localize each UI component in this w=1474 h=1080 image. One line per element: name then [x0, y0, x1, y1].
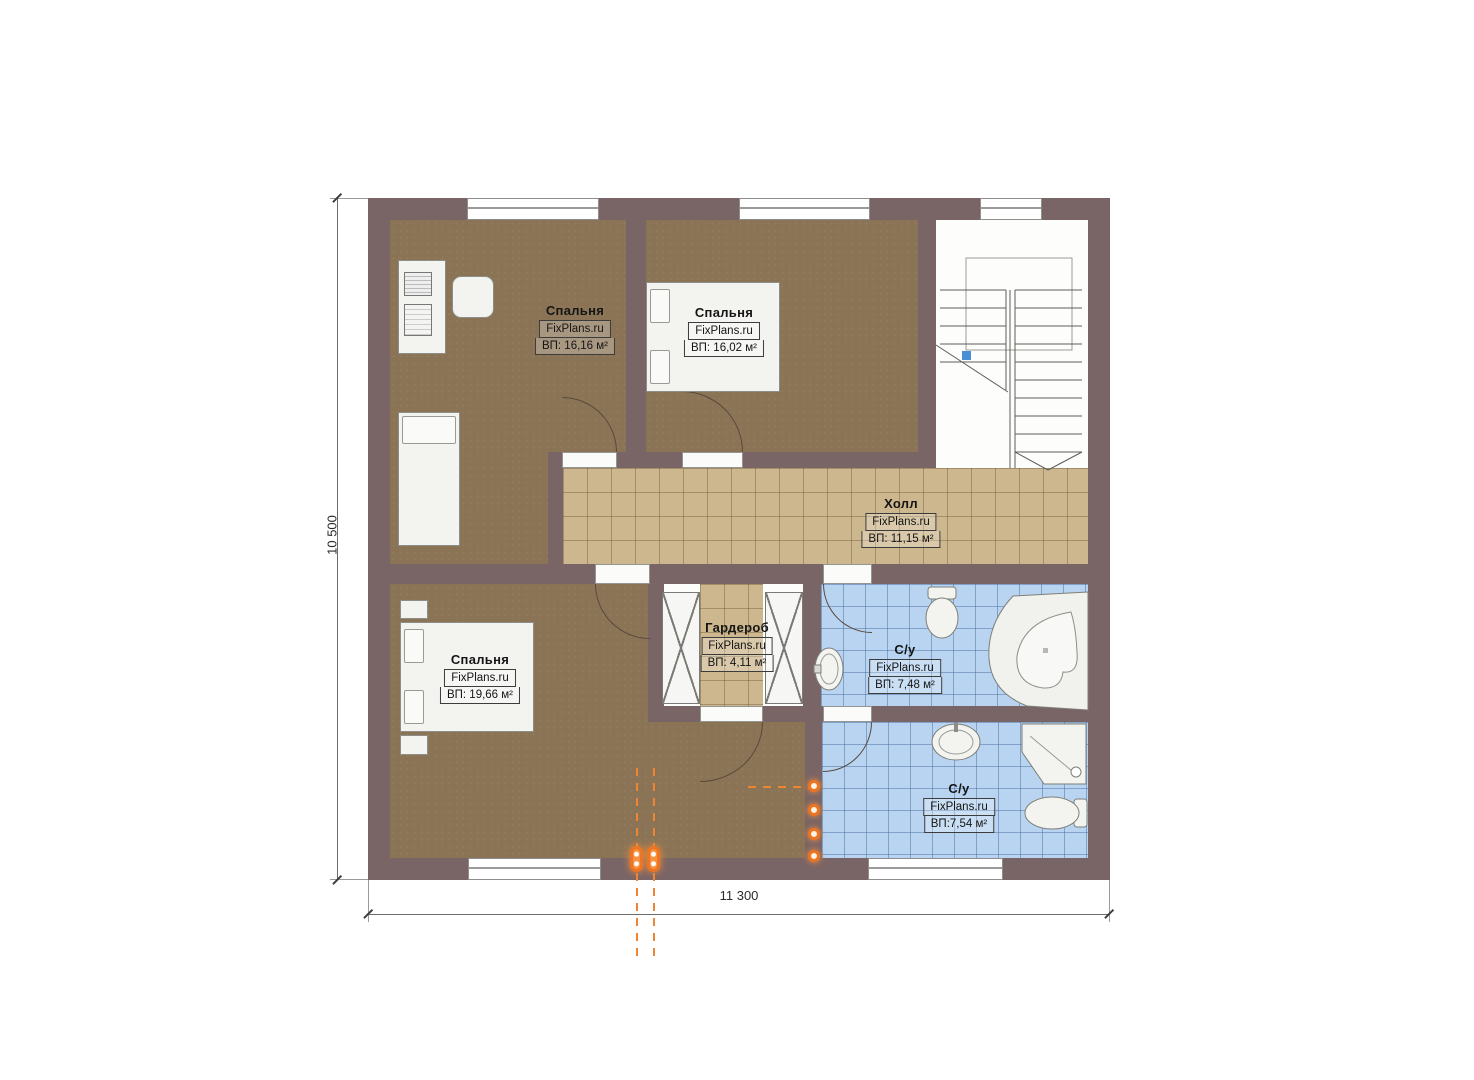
room-label-bedroom-top-left: Спальня FixPlans.ru ВП: 16,16 м² [535, 303, 615, 355]
room-label-bathroom-bottom: С/у FixPlans.ru ВП:7,54 м² [923, 781, 995, 833]
stair-marker-blue [962, 351, 971, 360]
bed-double-top-pillow-2 [650, 350, 670, 384]
wall-bedrooms-divider-top [626, 220, 646, 468]
room-label-bathroom-top: С/у FixPlans.ru ВП: 7,48 м² [868, 642, 942, 694]
dim-label-height: 10 500 [325, 515, 340, 555]
room-area: ВП: 11,15 м² [861, 531, 940, 548]
window-bottom-1 [468, 858, 601, 880]
wall-bath-split-seg1 [648, 706, 700, 722]
radiator-dot-2 [808, 804, 820, 816]
wall-hall-south-seg2 [650, 564, 823, 584]
nightstand-bottom [400, 735, 428, 755]
wall-hall-north-seg1 [617, 452, 682, 468]
bed-single-pillow [402, 416, 456, 444]
room-brand: FixPlans.ru [688, 322, 760, 340]
window-top-3 [980, 198, 1042, 220]
room-label-bedroom-top-middle: Спальня FixPlans.ru ВП: 16,02 м² [684, 305, 764, 357]
dim-line-horizontal [368, 914, 1110, 915]
dim-label-width: 11 300 [720, 888, 759, 903]
floor-hall-tiles [563, 468, 1088, 564]
door-leaf-bedroom-bottom [595, 564, 650, 584]
bed-double-bottom-pillow-2 [404, 690, 424, 724]
wall-hall-south-seg1 [390, 564, 595, 584]
desk-printer-icon [404, 272, 432, 296]
room-name: Спальня [546, 303, 604, 318]
riser-marker-2 [647, 846, 660, 872]
door-leaf-bedroom-top-middle [682, 452, 743, 468]
sink-top-bathroom [814, 646, 848, 692]
room-area: ВП: 4,11 м² [701, 655, 774, 672]
room-name: Спальня [451, 652, 509, 667]
room-name: Холл [884, 496, 918, 511]
room-brand: FixPlans.ru [923, 798, 995, 816]
room-label-hall: Холл FixPlans.ru ВП: 11,15 м² [861, 496, 940, 548]
room-brand: FixPlans.ru [444, 669, 516, 687]
room-area: ВП: 16,16 м² [535, 338, 615, 355]
dim-extension-bottom-1 [368, 880, 369, 922]
room-brand: FixPlans.ru [869, 659, 941, 677]
bed-double-bottom-pillow-1 [404, 629, 424, 663]
radiator-dashed-line [748, 786, 810, 788]
sink-bottom-bathroom [930, 722, 982, 766]
desk-monitor-icon [404, 304, 432, 336]
wall-exterior-left [368, 198, 390, 880]
room-brand: FixPlans.ru [539, 320, 611, 338]
room-name: Гардероб [705, 620, 769, 635]
room-brand: FixPlans.ru [865, 513, 937, 531]
desk-chair [452, 276, 494, 318]
wall-hall-north-seg2 [743, 452, 918, 468]
window-top-1 [467, 198, 599, 220]
window-bottom-2 [868, 858, 1003, 880]
dim-extension-bottom-2 [1109, 880, 1110, 922]
room-area: ВП: 19,66 м² [440, 687, 520, 704]
window-top-2 [739, 198, 870, 220]
riser-marker-1 [630, 846, 643, 872]
radiator-dot-4 [808, 850, 820, 862]
room-brand: FixPlans.ru [701, 637, 773, 655]
wall-bath-split-seg2 [763, 706, 823, 722]
toilet-top-bathroom [920, 586, 964, 640]
toilet-bottom-bathroom [1022, 794, 1088, 832]
bed-double-top-pillow-1 [650, 289, 670, 323]
room-name: Спальня [695, 305, 753, 320]
radiator-dot-3 [808, 828, 820, 840]
wall-exterior-right [1088, 198, 1110, 880]
room-name: С/у [894, 642, 915, 657]
room-label-wardrobe: Гардероб FixPlans.ru ВП: 4,11 м² [701, 620, 774, 672]
staircase [936, 220, 1088, 470]
corner-shower [1020, 722, 1088, 786]
room-area: ВП:7,54 м² [924, 816, 994, 833]
room-area: ВП: 7,48 м² [868, 677, 942, 694]
radiator-dot-1 [808, 780, 820, 792]
door-leaf-wardrobe [700, 706, 763, 722]
room-area: ВП: 16,02 м² [684, 340, 764, 357]
wall-hall-south-seg3 [872, 564, 1088, 584]
room-label-bedroom-bottom: Спальня FixPlans.ru ВП: 19,66 м² [440, 652, 520, 704]
room-name: С/у [948, 781, 969, 796]
nightstand-top [400, 600, 428, 619]
door-leaf-bathroom-top [823, 564, 872, 584]
corner-bathtub [975, 586, 1088, 712]
wardrobe-cabinet-left [662, 592, 700, 704]
wall-stairwell-divider [918, 220, 936, 468]
floor-plan-canvas: Спальня FixPlans.ru ВП: 16,16 м² Спальня… [0, 0, 1474, 1080]
door-leaf-bedroom-top-left [562, 452, 617, 468]
door-leaf-bathroom-bottom [823, 706, 872, 722]
